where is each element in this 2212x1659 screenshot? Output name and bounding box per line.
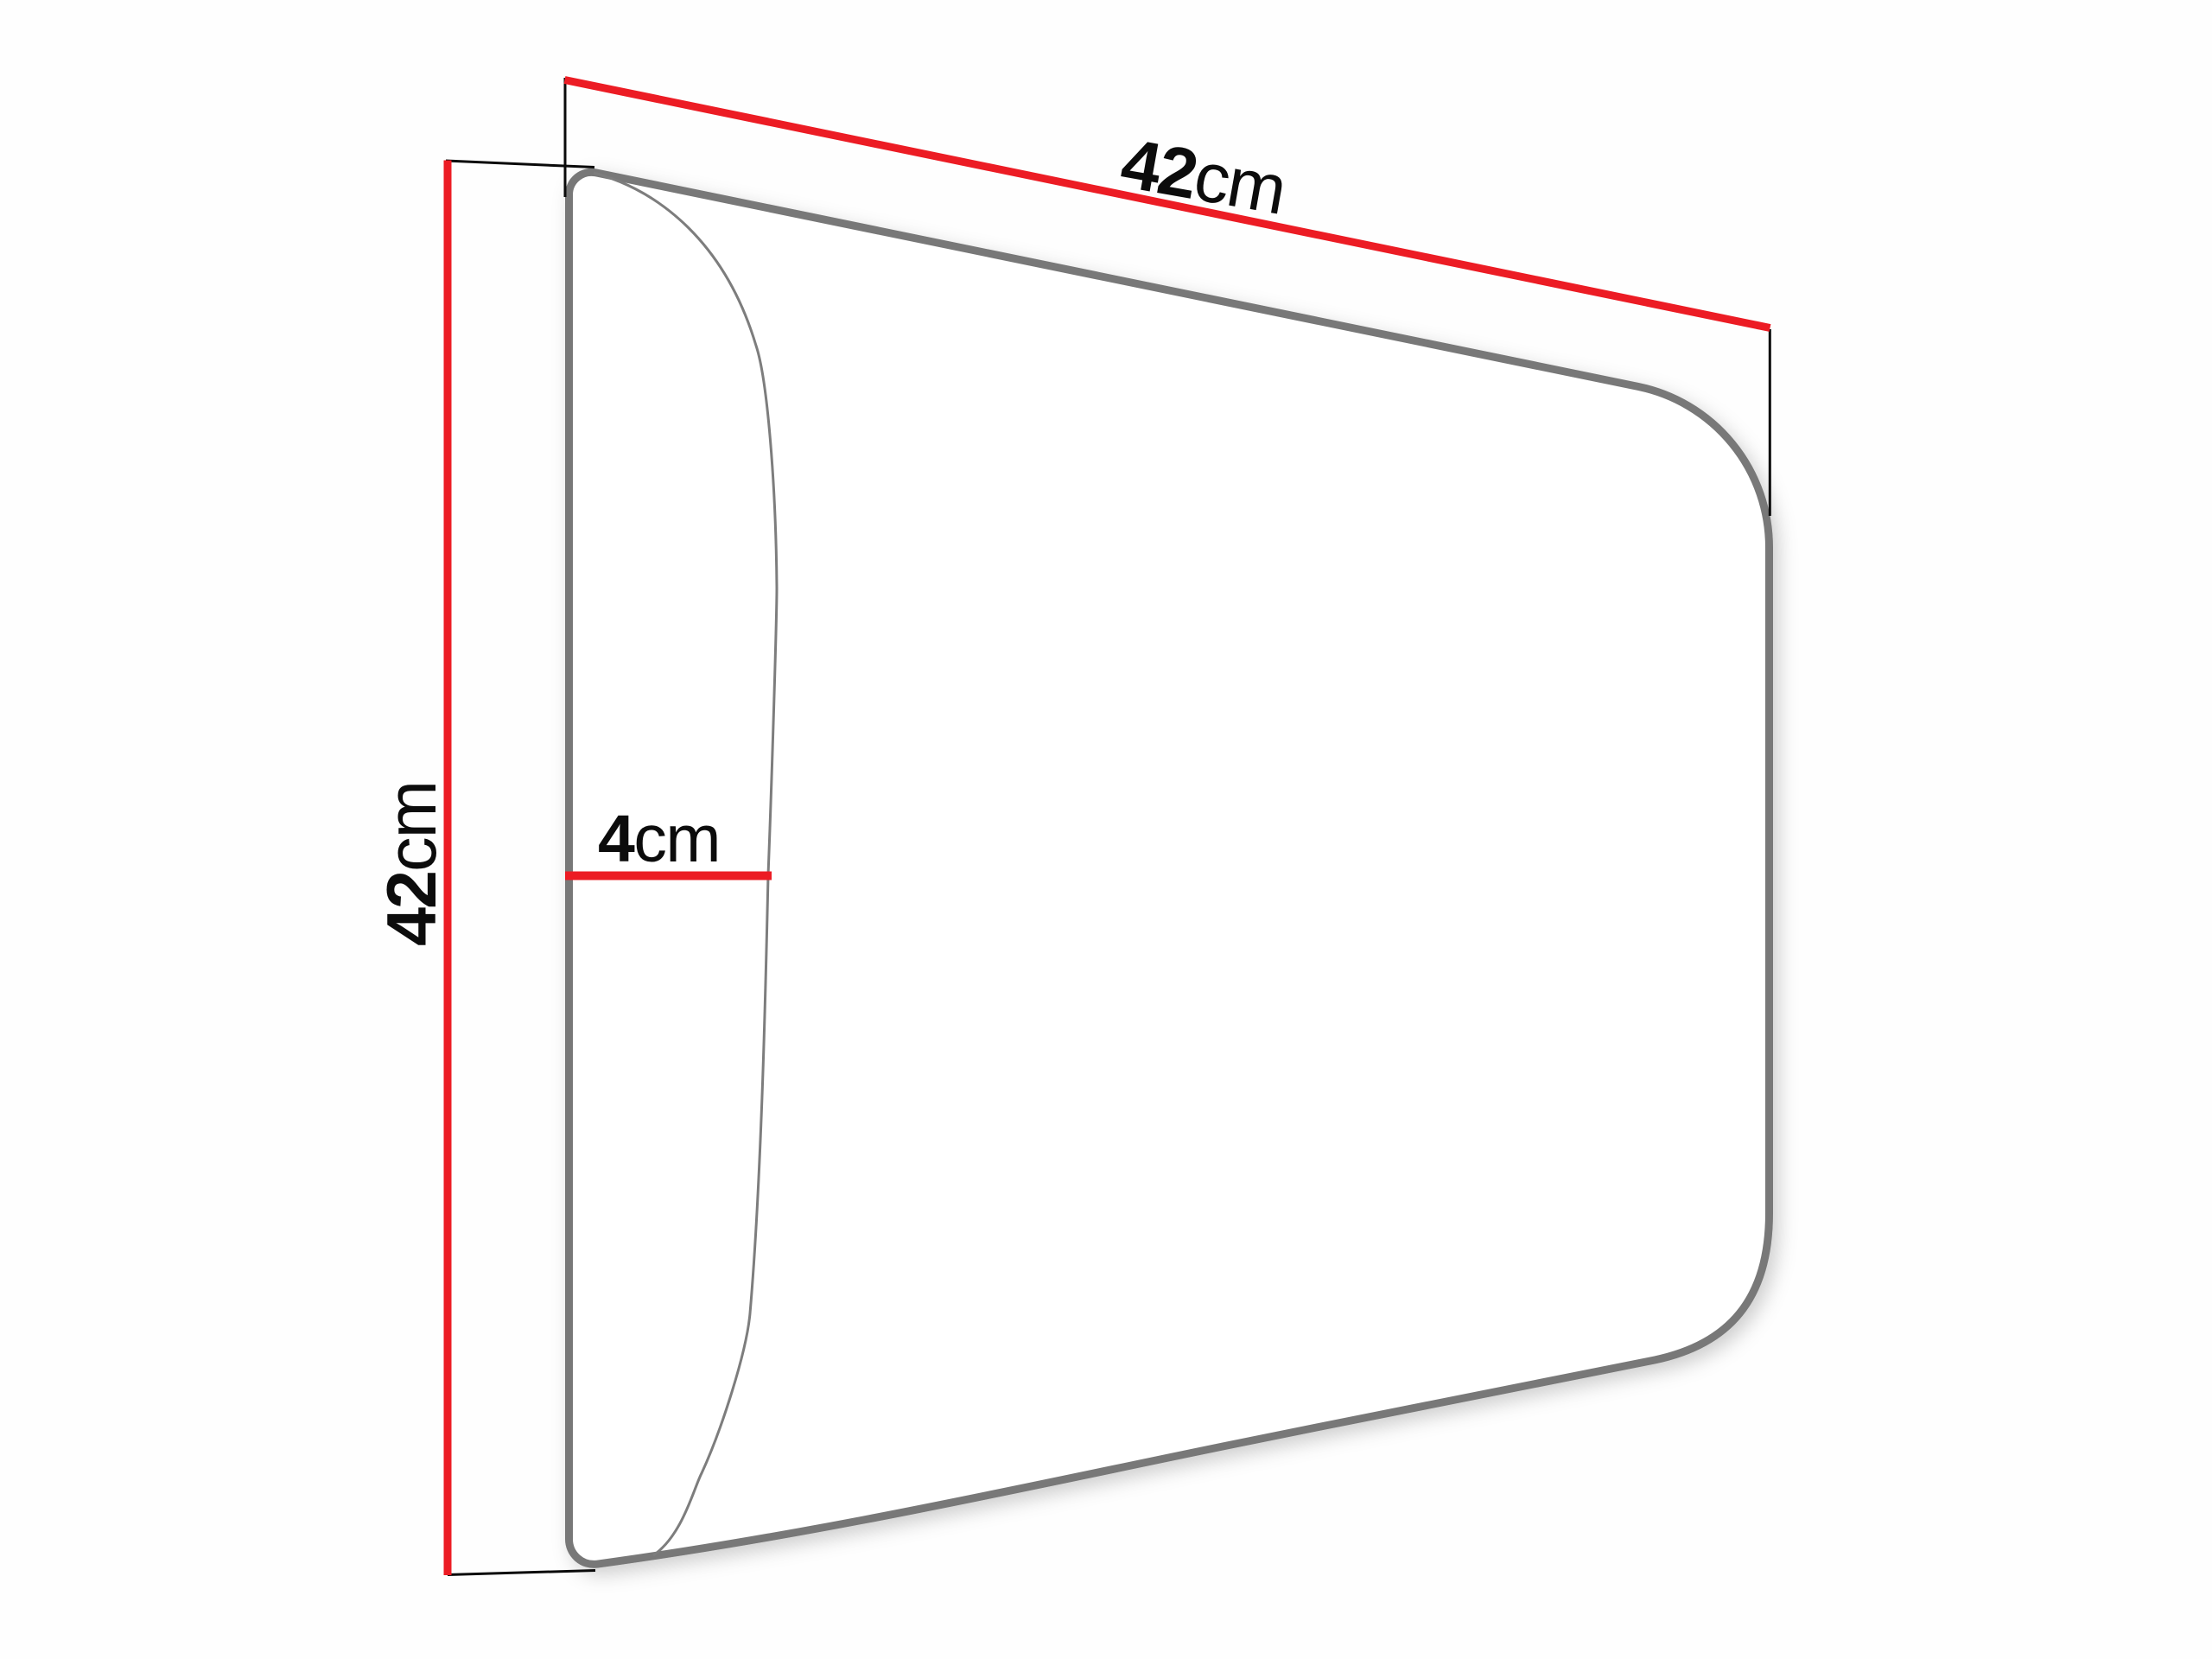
svg-text:4cm: 4cm <box>598 802 720 876</box>
svg-text:42cm: 42cm <box>373 782 451 946</box>
